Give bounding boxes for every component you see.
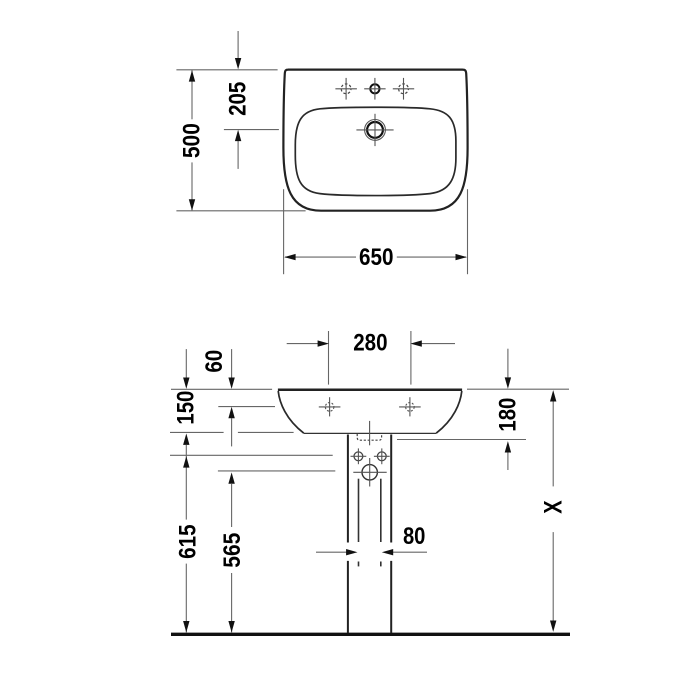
svg-text:205: 205: [225, 82, 252, 116]
svg-text:150: 150: [173, 391, 200, 425]
svg-text:500: 500: [178, 123, 205, 158]
svg-text:650: 650: [359, 244, 394, 271]
svg-text:280: 280: [353, 329, 387, 356]
svg-text:X: X: [540, 500, 568, 514]
svg-text:80: 80: [403, 523, 426, 550]
svg-text:565: 565: [219, 533, 246, 568]
svg-text:60: 60: [201, 350, 228, 373]
svg-text:615: 615: [174, 524, 201, 559]
svg-text:180: 180: [495, 398, 522, 432]
